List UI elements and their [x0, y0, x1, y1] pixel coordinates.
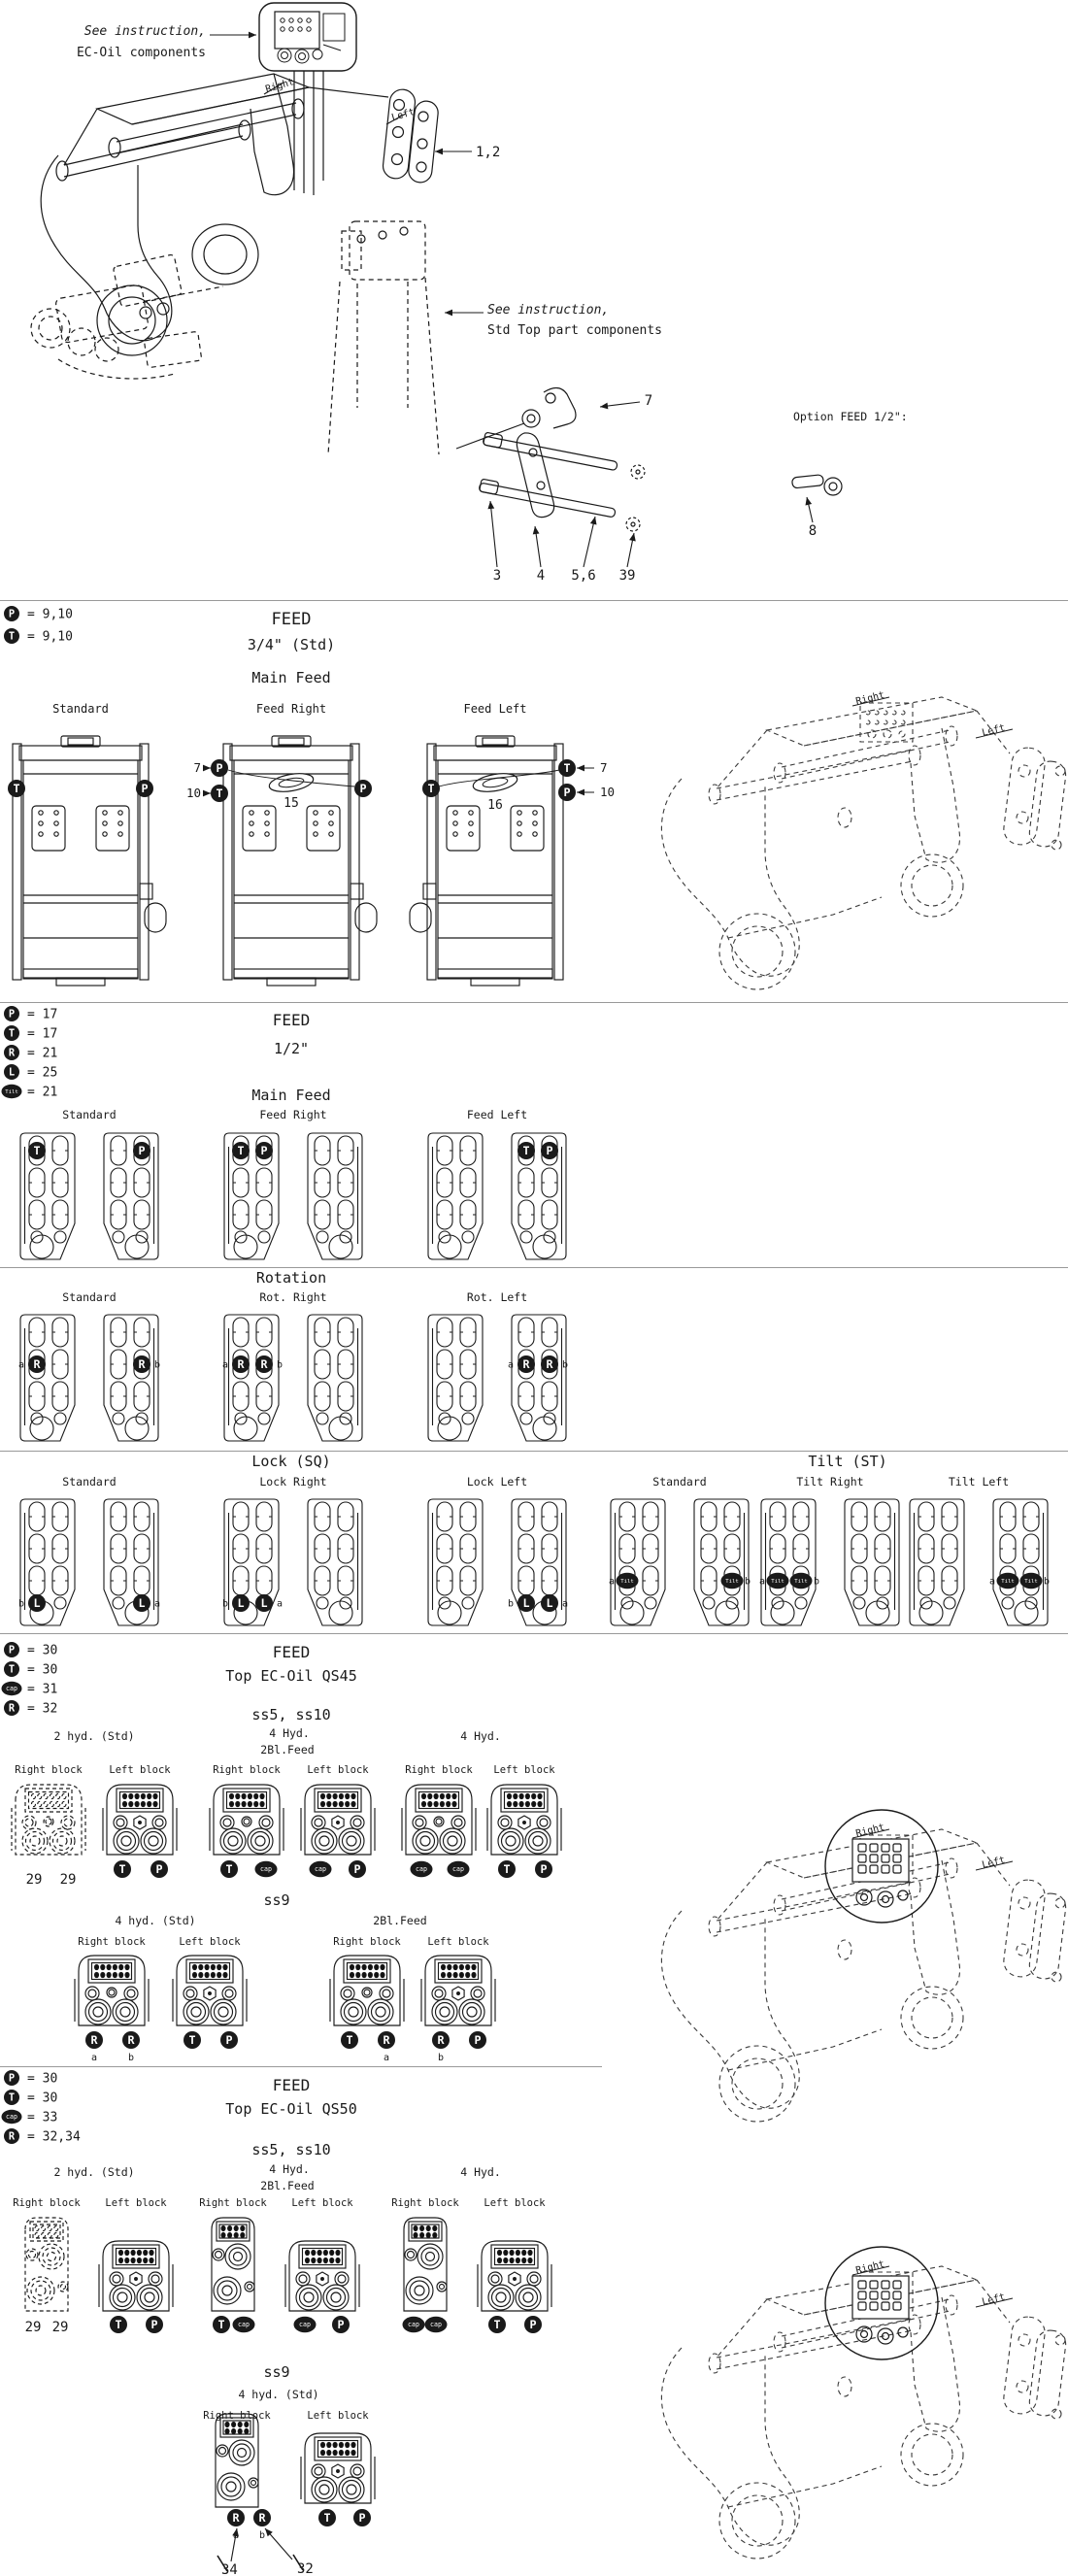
- valve-block-45: [99, 2241, 173, 2311]
- badge-text: P: [474, 2033, 481, 2047]
- port-plate: [845, 1499, 899, 1625]
- badge-text: R: [9, 1702, 16, 1714]
- port-badge-cap: cap: [403, 2317, 425, 2332]
- col-feed-left: Feed Left: [463, 702, 526, 716]
- port-badge-r: R: [517, 1355, 535, 1373]
- column-label: 2 hyd. (Std): [53, 1729, 134, 1743]
- legend-value: = 17: [27, 1027, 57, 1042]
- column-sublabel: 2Bl.Feed: [260, 2179, 314, 2192]
- legend-qs45: P= 30T= 30cap= 31R= 32: [2, 1642, 58, 1717]
- port-plate: [308, 1315, 362, 1441]
- port-badge-cap: cap: [448, 1861, 470, 1877]
- badge-text: T: [493, 2318, 500, 2331]
- port-badge-p: P: [349, 1860, 366, 1878]
- valve-block-45: [285, 2241, 359, 2311]
- port-plate: [104, 1499, 158, 1625]
- group-label: Standard: [62, 1475, 116, 1489]
- group-label: Rot. Left: [467, 1290, 527, 1304]
- valve-block-45: [402, 1785, 476, 1855]
- port-plate: [428, 1133, 483, 1259]
- callout-10-fr: 10: [186, 786, 201, 800]
- feed-half-row-0: Main FeedStandardTPFeed RightTPFeed Left…: [20, 1087, 566, 1259]
- badge-text: R: [9, 1047, 16, 1058]
- port-badge-t: T: [4, 1661, 19, 1677]
- port-badge-t: T: [114, 1860, 131, 1878]
- legend-value: = 17: [27, 1008, 57, 1022]
- legend-value: = 30: [27, 1663, 57, 1678]
- port-badge-l: L: [28, 1594, 46, 1612]
- valve-block-45: [301, 1785, 375, 1855]
- part-number-29: 29: [60, 1872, 77, 1888]
- legend-value: = 31: [27, 1683, 57, 1697]
- badge-text: P: [9, 2072, 15, 2084]
- port-badge-tilt: Tilt: [721, 1573, 744, 1589]
- port-letter: a: [562, 1599, 568, 1610]
- badge-text: T: [346, 2033, 352, 2047]
- badge-text: P: [540, 1862, 547, 1876]
- port-badge-r: R: [4, 1700, 19, 1716]
- legend-value: = 32: [27, 1702, 57, 1717]
- badge-text: R: [138, 1357, 146, 1371]
- block-label-left: Left block: [109, 1764, 171, 1776]
- port-badge-l: L: [133, 1594, 150, 1612]
- row-title: ss9: [263, 2363, 289, 2381]
- feed12-subtitle: 1/2": [274, 1040, 309, 1057]
- part-number-29: 29: [25, 2320, 42, 2335]
- badge-text: Tilt: [620, 1579, 633, 1585]
- port-letter: a: [91, 2053, 97, 2063]
- valve-block-50: [25, 2218, 68, 2311]
- valve-block-45: [487, 1785, 561, 1855]
- port-badge-r: R: [378, 2031, 395, 2049]
- badge-text: cap: [452, 1865, 464, 1873]
- port-badge-p: P: [133, 1142, 150, 1159]
- feed34-title: FEED: [272, 610, 312, 629]
- feed34-row-title: Main Feed: [251, 669, 330, 686]
- badge-text: T: [503, 1862, 510, 1876]
- badge-text: Tilt: [5, 1089, 17, 1095]
- coupler-front-view: [13, 736, 166, 986]
- port-plate: [104, 1315, 158, 1441]
- port-plate: [993, 1499, 1048, 1625]
- port-letter: b: [438, 2053, 444, 2063]
- badge-text: T: [188, 2033, 195, 2047]
- port-badge-p: P: [524, 2316, 542, 2333]
- leader-arrow: [533, 526, 541, 567]
- option-feed-label: Option FEED 1/2":: [793, 410, 908, 423]
- port-badge-cap: cap: [2, 2110, 22, 2124]
- port-badge-p: P: [255, 1142, 273, 1159]
- port-badge-p: P: [4, 1006, 19, 1021]
- leader-arrow: [577, 789, 594, 796]
- port-badge-t: T: [4, 1025, 19, 1041]
- callout-39: 39: [619, 568, 636, 584]
- valve-block-45: [301, 2433, 375, 2503]
- port-badge-cap: cap: [425, 2317, 448, 2332]
- legend-feed-12: P= 17T= 17R= 21L= 25Tilt= 21: [2, 1006, 58, 1100]
- row-title: ss9: [263, 1891, 289, 1909]
- badge-text: T: [118, 1862, 125, 1876]
- left-side-label: Left: [390, 107, 416, 123]
- port-badge-p: P: [541, 1142, 558, 1159]
- valve-block-45: [421, 1956, 495, 2025]
- port-badge-t: T: [422, 780, 440, 797]
- valve-block-45: [75, 1956, 149, 2025]
- port-badge-cap: cap: [233, 2317, 255, 2332]
- badge-text: Tilt: [725, 1579, 738, 1585]
- qs45-section: FEEDTop EC-Oil QS45ss5, ss102 hyd. (Std)…: [12, 1643, 561, 2063]
- row-title: Main Feed: [251, 1087, 330, 1104]
- badge-text: R: [383, 2033, 390, 2047]
- port-badge-tilt: Tilt: [790, 1573, 813, 1589]
- legend-value: = 30: [27, 2091, 57, 2106]
- callout-7: 7: [645, 393, 652, 409]
- port-badge-r: R: [133, 1355, 150, 1373]
- port-badge-p: P: [4, 2070, 19, 2086]
- port-plate: [428, 1315, 483, 1441]
- badge-text: P: [529, 2318, 536, 2331]
- parts-diagram-page: { "colors": {"ink": "#1a1a1a", "divider"…: [0, 0, 1068, 2576]
- std-note-line1: See instruction,: [487, 303, 609, 318]
- badge-text: T: [237, 1144, 244, 1157]
- badge-text: P: [155, 1862, 162, 1876]
- leader-arrow: [445, 310, 484, 317]
- iso1-left-label: Left: [981, 722, 1006, 739]
- port-badge-r: R: [541, 1355, 558, 1373]
- badge-text: L: [546, 1596, 552, 1610]
- badge-text: T: [9, 1663, 15, 1675]
- port-badge-r: R: [232, 1355, 250, 1373]
- port-plate: [308, 1499, 362, 1625]
- port-badge-l: L: [541, 1594, 558, 1612]
- valve-block-45: [103, 1785, 177, 1855]
- block-label-right: Right block: [405, 1764, 473, 1776]
- block-label-right: Right block: [199, 2197, 267, 2209]
- port-badge-t: T: [220, 1860, 238, 1878]
- callout-3: 3: [493, 568, 501, 584]
- row-title: Rotation: [256, 1269, 326, 1287]
- badge-text: R: [237, 1357, 245, 1371]
- port-badge-p: P: [354, 780, 372, 797]
- port-letter: a: [759, 1577, 765, 1588]
- port-letter: a: [384, 2053, 389, 2063]
- badge-text: cap: [315, 1865, 326, 1873]
- part-number-29: 29: [52, 2320, 69, 2335]
- valve-block-45: [173, 1956, 247, 2025]
- badge-text: P: [216, 761, 222, 775]
- badge-text: T: [216, 786, 222, 800]
- badge-text: cap: [260, 1865, 272, 1873]
- port-badge-t: T: [28, 1142, 46, 1159]
- badge-text: P: [9, 1644, 15, 1656]
- block-label-left: Left block: [484, 2197, 546, 2209]
- valve-block-45: [210, 1785, 284, 1855]
- badge-text: P: [353, 1862, 360, 1876]
- legend-value: = 9,10: [27, 608, 73, 622]
- port-badge-t: T: [213, 2316, 230, 2333]
- legend-value: = 30: [27, 2072, 57, 2087]
- ec-oil-note-line1: See instruction,: [84, 24, 206, 39]
- port-letter: b: [128, 2053, 134, 2063]
- port-badge-l: L: [4, 1064, 19, 1080]
- port-badge-cap: cap: [2, 1682, 22, 1695]
- badge-text: T: [427, 782, 434, 795]
- column-sublabel: 2Bl.Feed: [260, 1743, 314, 1756]
- badge-text: P: [225, 2033, 232, 2047]
- port-badge-r: R: [227, 2509, 245, 2526]
- port-letter: b: [562, 1360, 568, 1371]
- group-label: Tilt Left: [949, 1475, 1009, 1489]
- column-label: 2Bl.Feed: [373, 1914, 426, 1927]
- port-letter: a: [277, 1599, 283, 1610]
- feed34-row: TPPTPTTP: [8, 736, 594, 986]
- group-label: Lock Right: [259, 1475, 326, 1489]
- group-label: Rot. Right: [259, 1290, 326, 1304]
- group-label: Standard: [62, 1108, 116, 1121]
- column-label: 4 Hyd.: [460, 1729, 501, 1743]
- port-badge-tilt: Tilt: [1020, 1573, 1043, 1589]
- badge-text: T: [9, 630, 15, 642]
- badge-text: cap: [6, 1685, 17, 1692]
- badge-text: Tilt: [1001, 1579, 1014, 1585]
- std-top-part-dashed: [328, 221, 439, 454]
- port-badge-t: T: [211, 785, 228, 802]
- legend-value: = 21: [27, 1086, 57, 1100]
- port-badge-p: P: [469, 2031, 486, 2049]
- badge-text: T: [9, 1027, 15, 1039]
- badge-text: R: [260, 1357, 268, 1371]
- port-letter: b: [508, 1599, 514, 1610]
- legend-value: = 32,34: [27, 2130, 81, 2145]
- row-title: ss5, ss10: [251, 1706, 330, 1723]
- column-label: 4 Hyd.: [269, 1726, 310, 1740]
- port-badge-tilt: Tilt: [767, 1573, 789, 1589]
- badge-text: P: [359, 782, 366, 795]
- port-badge-t: T: [488, 2316, 506, 2333]
- column-label: 2 hyd. (Std): [53, 2165, 134, 2179]
- leader-arrow: [805, 497, 813, 522]
- badge-text: L: [138, 1596, 145, 1610]
- group-label: Feed Right: [259, 1108, 326, 1121]
- badge-text: P: [337, 2318, 344, 2331]
- port-letter: a: [609, 1577, 615, 1588]
- port-badge-t: T: [8, 780, 25, 797]
- iso-label-ticks: [852, 697, 1013, 2307]
- port-badge-r: R: [432, 2031, 450, 2049]
- group-label: Standard: [652, 1475, 706, 1489]
- badge-text: cap: [299, 2321, 311, 2328]
- badge-text: T: [33, 1144, 40, 1157]
- section-title: FEED: [273, 2076, 311, 2094]
- block-label-right: Right block: [391, 2197, 459, 2209]
- leader-arrow: [203, 765, 211, 772]
- port-plate: [428, 1499, 483, 1625]
- callout-5-6: 5,6: [571, 568, 595, 584]
- badge-text: R: [232, 2511, 240, 2525]
- badge-text: T: [563, 761, 570, 775]
- port-badge-cap: cap: [294, 2317, 317, 2332]
- valve-block-45: [12, 1785, 85, 1855]
- legend-value: = 33: [27, 2111, 57, 2125]
- port-badge-l: L: [232, 1594, 250, 1612]
- badge-text: T: [323, 2511, 330, 2525]
- badge-text: T: [522, 1144, 529, 1157]
- leader-arrow: [600, 402, 640, 409]
- feed-half-row-2: Lock (SQ)StandardLbLaLock RightLbLaLock …: [18, 1453, 568, 1625]
- port-badge-p: P: [150, 1860, 168, 1878]
- badge-text: T: [115, 2318, 121, 2331]
- badge-text: cap: [430, 2321, 442, 2328]
- port-badge-p: P: [4, 1642, 19, 1657]
- std-note-line2: Std Top part components: [487, 323, 662, 338]
- badge-text: L: [522, 1596, 529, 1610]
- row-title: Tilt (ST): [808, 1453, 886, 1470]
- feed-half-row-3: Tilt (ST)StandardTiltaTiltbTilt RightTil…: [609, 1453, 1050, 1625]
- top-part-isometric-drawing: [31, 3, 842, 531]
- block-label-left: Left block: [307, 1764, 369, 1776]
- block-label-right: Right block: [333, 1936, 401, 1948]
- block-label-left: Left block: [307, 2410, 369, 2422]
- port-letter: b: [18, 1599, 24, 1610]
- block-label-right: Right block: [78, 1936, 146, 1948]
- badge-text: Tilt: [794, 1579, 807, 1585]
- legend-value: = 21: [27, 1047, 57, 1061]
- port-badge-t: T: [110, 2316, 127, 2333]
- port-letter: a: [18, 1360, 24, 1371]
- block-label-left: Left block: [427, 1936, 489, 1948]
- section-subtitle: Top EC-Oil QS45: [225, 1667, 356, 1685]
- badge-text: R: [546, 1357, 553, 1371]
- port-letter: b: [154, 1360, 160, 1371]
- badge-text: L: [260, 1596, 267, 1610]
- badge-text: Tilt: [1024, 1579, 1037, 1585]
- port-badge-tilt: Tilt: [997, 1573, 1019, 1589]
- ec-oil-bubble-detail: [278, 14, 345, 63]
- port-badge-tilt: Tilt: [2, 1085, 22, 1098]
- column-label: 4 Hyd.: [269, 2162, 310, 2176]
- port-badge-cap: cap: [255, 1861, 278, 1877]
- linkage-parts: [456, 387, 645, 531]
- port-badge-t: T: [4, 2090, 19, 2105]
- leader-arrow: [265, 2528, 292, 2559]
- ec-oil-note-line2: EC-Oil components: [77, 46, 206, 60]
- port-letter: a: [989, 1577, 995, 1588]
- group-label: Tilt Right: [796, 1475, 863, 1489]
- port-letter: b: [814, 1577, 819, 1588]
- callout-7-fl: 7: [600, 760, 608, 775]
- port-badge-p: P: [332, 2316, 350, 2333]
- callout-8: 8: [809, 523, 817, 539]
- callout-10-fl: 10: [600, 785, 615, 799]
- port-badge-p: P: [535, 1860, 552, 1878]
- block-label-right: Right block: [13, 2197, 81, 2209]
- port-plate: [694, 1499, 749, 1625]
- iso2-left-label: Left: [981, 1855, 1006, 1871]
- feed-half-row-1: RotationStandardRaRbRot. RightRaRbRot. L…: [18, 1269, 568, 1441]
- col-standard: Standard: [52, 702, 109, 716]
- badge-text: cap: [238, 2321, 250, 2328]
- port-badge-t: T: [318, 2509, 336, 2526]
- port-badge-l: L: [517, 1594, 535, 1612]
- block-label-right: Right block: [213, 1764, 281, 1776]
- block-label-left: Left block: [291, 2197, 353, 2209]
- badge-text: L: [33, 1596, 40, 1610]
- column-label: 4 hyd. (Std): [238, 2388, 318, 2401]
- port-badge-r: R: [4, 2128, 19, 2144]
- badge-text: P: [358, 2511, 365, 2525]
- port-badge-cap: cap: [310, 1861, 332, 1877]
- valve-block-45: [478, 2241, 551, 2311]
- port-letter: b: [259, 2530, 265, 2541]
- badge-text: T: [9, 2091, 15, 2103]
- port-plate: [512, 1315, 566, 1441]
- callout-1-2: 1,2: [476, 145, 500, 160]
- legend-qs50: P= 30T= 30cap= 33R= 32,34: [2, 2070, 81, 2145]
- group-label: Standard: [62, 1290, 116, 1304]
- port-badge-t: T: [184, 2031, 201, 2049]
- block-label-right: Right block: [15, 1764, 83, 1776]
- badge-text: R: [522, 1357, 530, 1371]
- port-badge-tilt: Tilt: [617, 1573, 639, 1589]
- badge-text: R: [258, 2511, 266, 2525]
- port-letter: a: [508, 1360, 514, 1371]
- badge-text: T: [225, 1862, 232, 1876]
- port-badge-t: T: [4, 628, 19, 644]
- valve-block-50: [212, 2218, 254, 2311]
- column-label: 4 hyd. (Std): [115, 1914, 195, 1927]
- part-16: 16: [487, 798, 503, 813]
- badge-text: T: [217, 2318, 224, 2331]
- badge-text: T: [13, 782, 19, 795]
- port-plate: [20, 1499, 75, 1625]
- leader-arrow: [487, 501, 497, 567]
- badge-text: P: [9, 608, 15, 619]
- badge-text: R: [9, 2130, 16, 2142]
- port-badge-p: P: [4, 606, 19, 621]
- legend-value: = 30: [27, 1644, 57, 1658]
- legend-feed-34: P= 9,10T= 9,10: [4, 606, 73, 645]
- section-title: FEED: [273, 1643, 311, 1661]
- feed34-subtitle: 3/4" (Std): [248, 636, 335, 653]
- badge-text: R: [90, 2033, 98, 2047]
- badge-text: L: [237, 1596, 244, 1610]
- leader-arrow: [627, 533, 636, 567]
- port-badge-t: T: [232, 1142, 250, 1159]
- leader-arrow: [584, 517, 597, 567]
- port-badge-t: T: [517, 1142, 535, 1159]
- port-plate: [910, 1499, 964, 1625]
- port-plate: [20, 1315, 75, 1441]
- callout-4: 4: [537, 568, 545, 584]
- badge-text: cap: [416, 1865, 427, 1873]
- part-15: 15: [284, 796, 299, 811]
- port-badge-t: T: [558, 759, 576, 777]
- legend-value: = 9,10: [27, 630, 73, 645]
- block-label-left: Left block: [105, 2197, 167, 2209]
- valve-block-50: [216, 2414, 258, 2507]
- section-subtitle: Top EC-Oil QS50: [225, 2100, 356, 2118]
- port-badge-r: R: [253, 2509, 271, 2526]
- leader-arrow: [210, 32, 256, 39]
- port-letter: b: [1044, 1577, 1050, 1588]
- badge-text: P: [563, 786, 570, 799]
- row-title: Lock (SQ): [251, 1453, 330, 1470]
- qs50-section: FEEDTop EC-Oil QS50ss5, ss102 hyd. (Std)…: [13, 2076, 551, 2576]
- leader-arrow: [435, 149, 472, 155]
- port-badge-p: P: [353, 2509, 371, 2526]
- badge-text: Tilt: [771, 1579, 784, 1585]
- valve-block-45: [330, 1956, 404, 2025]
